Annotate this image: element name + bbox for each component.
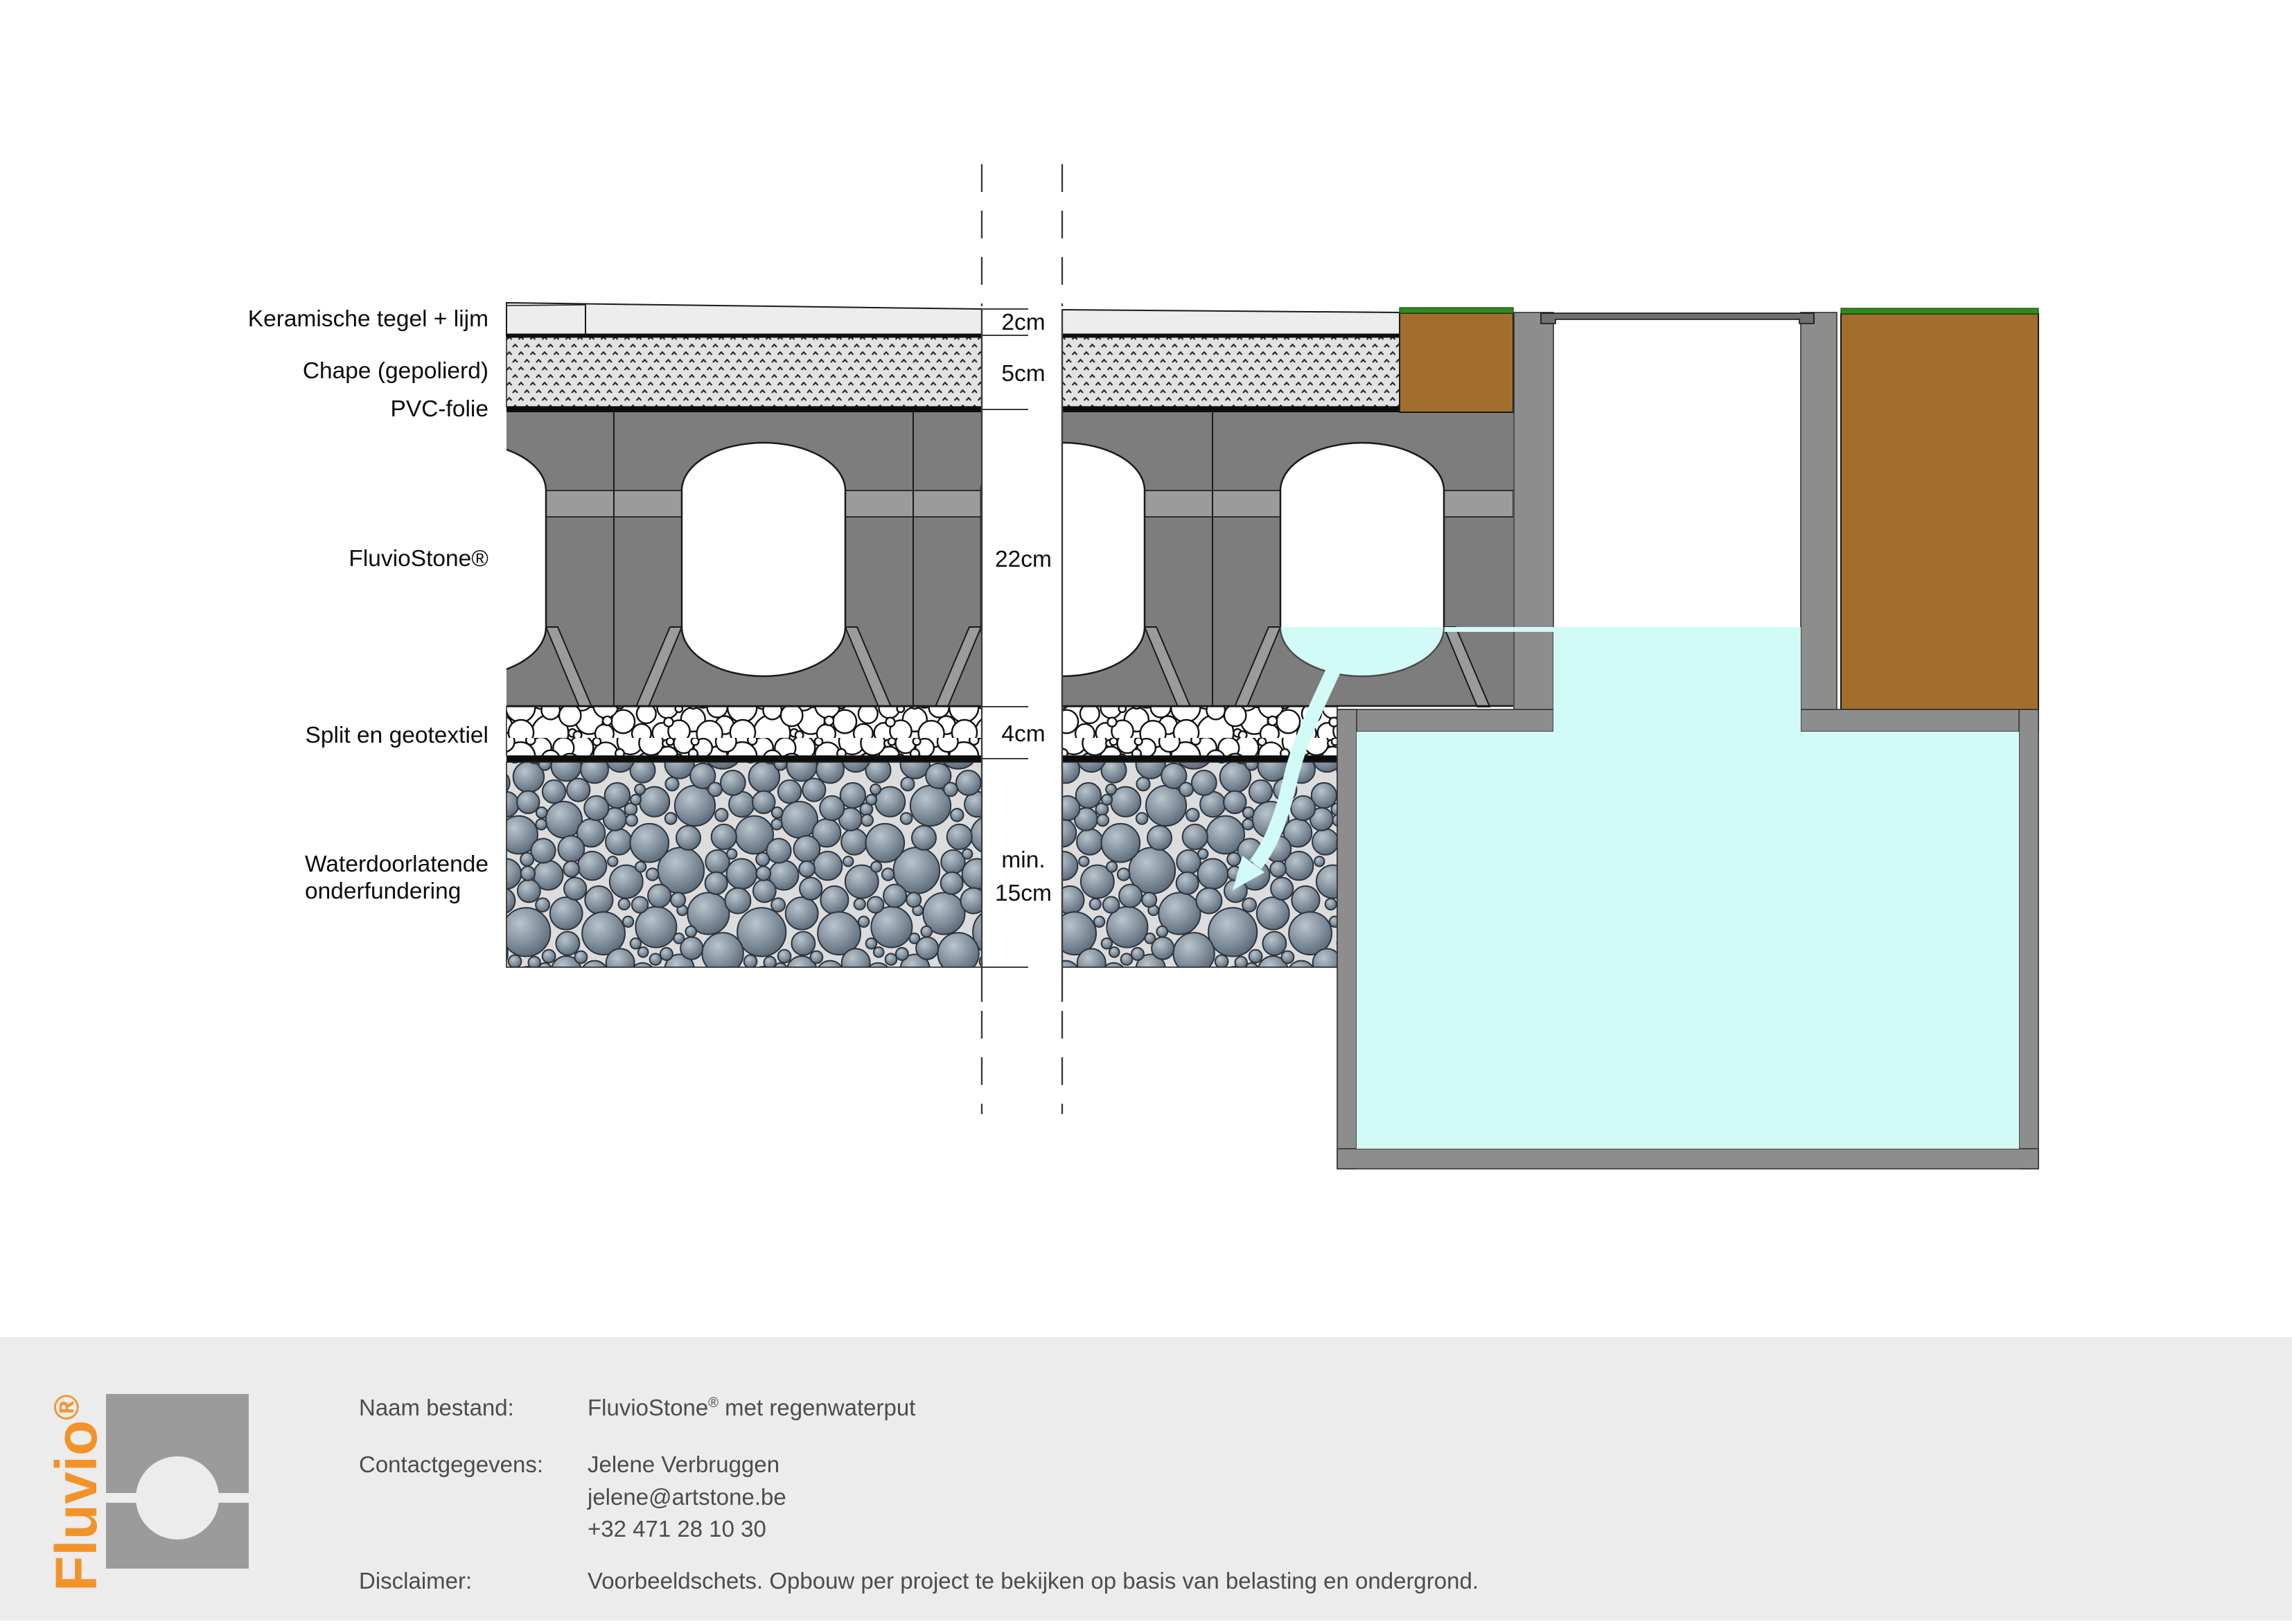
svg-text:Split en geotextiel: Split en geotextiel <box>306 723 488 748</box>
svg-text:Keramische tegel + lijm: Keramische tegel + lijm <box>248 306 488 332</box>
svg-text:Waterdoorlatende: Waterdoorlatende <box>305 851 488 877</box>
svg-text:PVC-folie: PVC-folie <box>391 396 489 422</box>
svg-text:15cm: 15cm <box>995 881 1052 906</box>
svg-text:Disclaimer:: Disclaimer: <box>359 1568 472 1594</box>
svg-text:min.: min. <box>1001 847 1045 873</box>
svg-text:onderfundering: onderfundering <box>305 879 461 904</box>
svg-text:FluvioStone®: FluvioStone® <box>349 546 488 572</box>
svg-text:5cm: 5cm <box>1001 361 1045 387</box>
svg-text:2cm: 2cm <box>1001 310 1045 335</box>
svg-text:FluvioStone® met regenwaterput: FluvioStone® met regenwaterput <box>588 1395 915 1420</box>
svg-text:Jelene Verbruggen: Jelene Verbruggen <box>588 1451 779 1477</box>
svg-text:Contactgegevens:: Contactgegevens: <box>359 1451 543 1477</box>
svg-text:Voorbeeldschets. Opbouw per pr: Voorbeeldschets. Opbouw per project te b… <box>588 1568 1479 1594</box>
svg-text:4cm: 4cm <box>1001 721 1045 747</box>
svg-text:jelene@artstone.be: jelene@artstone.be <box>587 1484 786 1510</box>
svg-text:Fluvio®: Fluvio® <box>44 1395 109 1591</box>
svg-text:Chape (gepolierd): Chape (gepolierd) <box>303 358 488 384</box>
svg-text:+32 471 28 10 30: +32 471 28 10 30 <box>588 1516 766 1542</box>
svg-text:22cm: 22cm <box>995 547 1052 572</box>
svg-text:Naam bestand:: Naam bestand: <box>359 1395 514 1420</box>
